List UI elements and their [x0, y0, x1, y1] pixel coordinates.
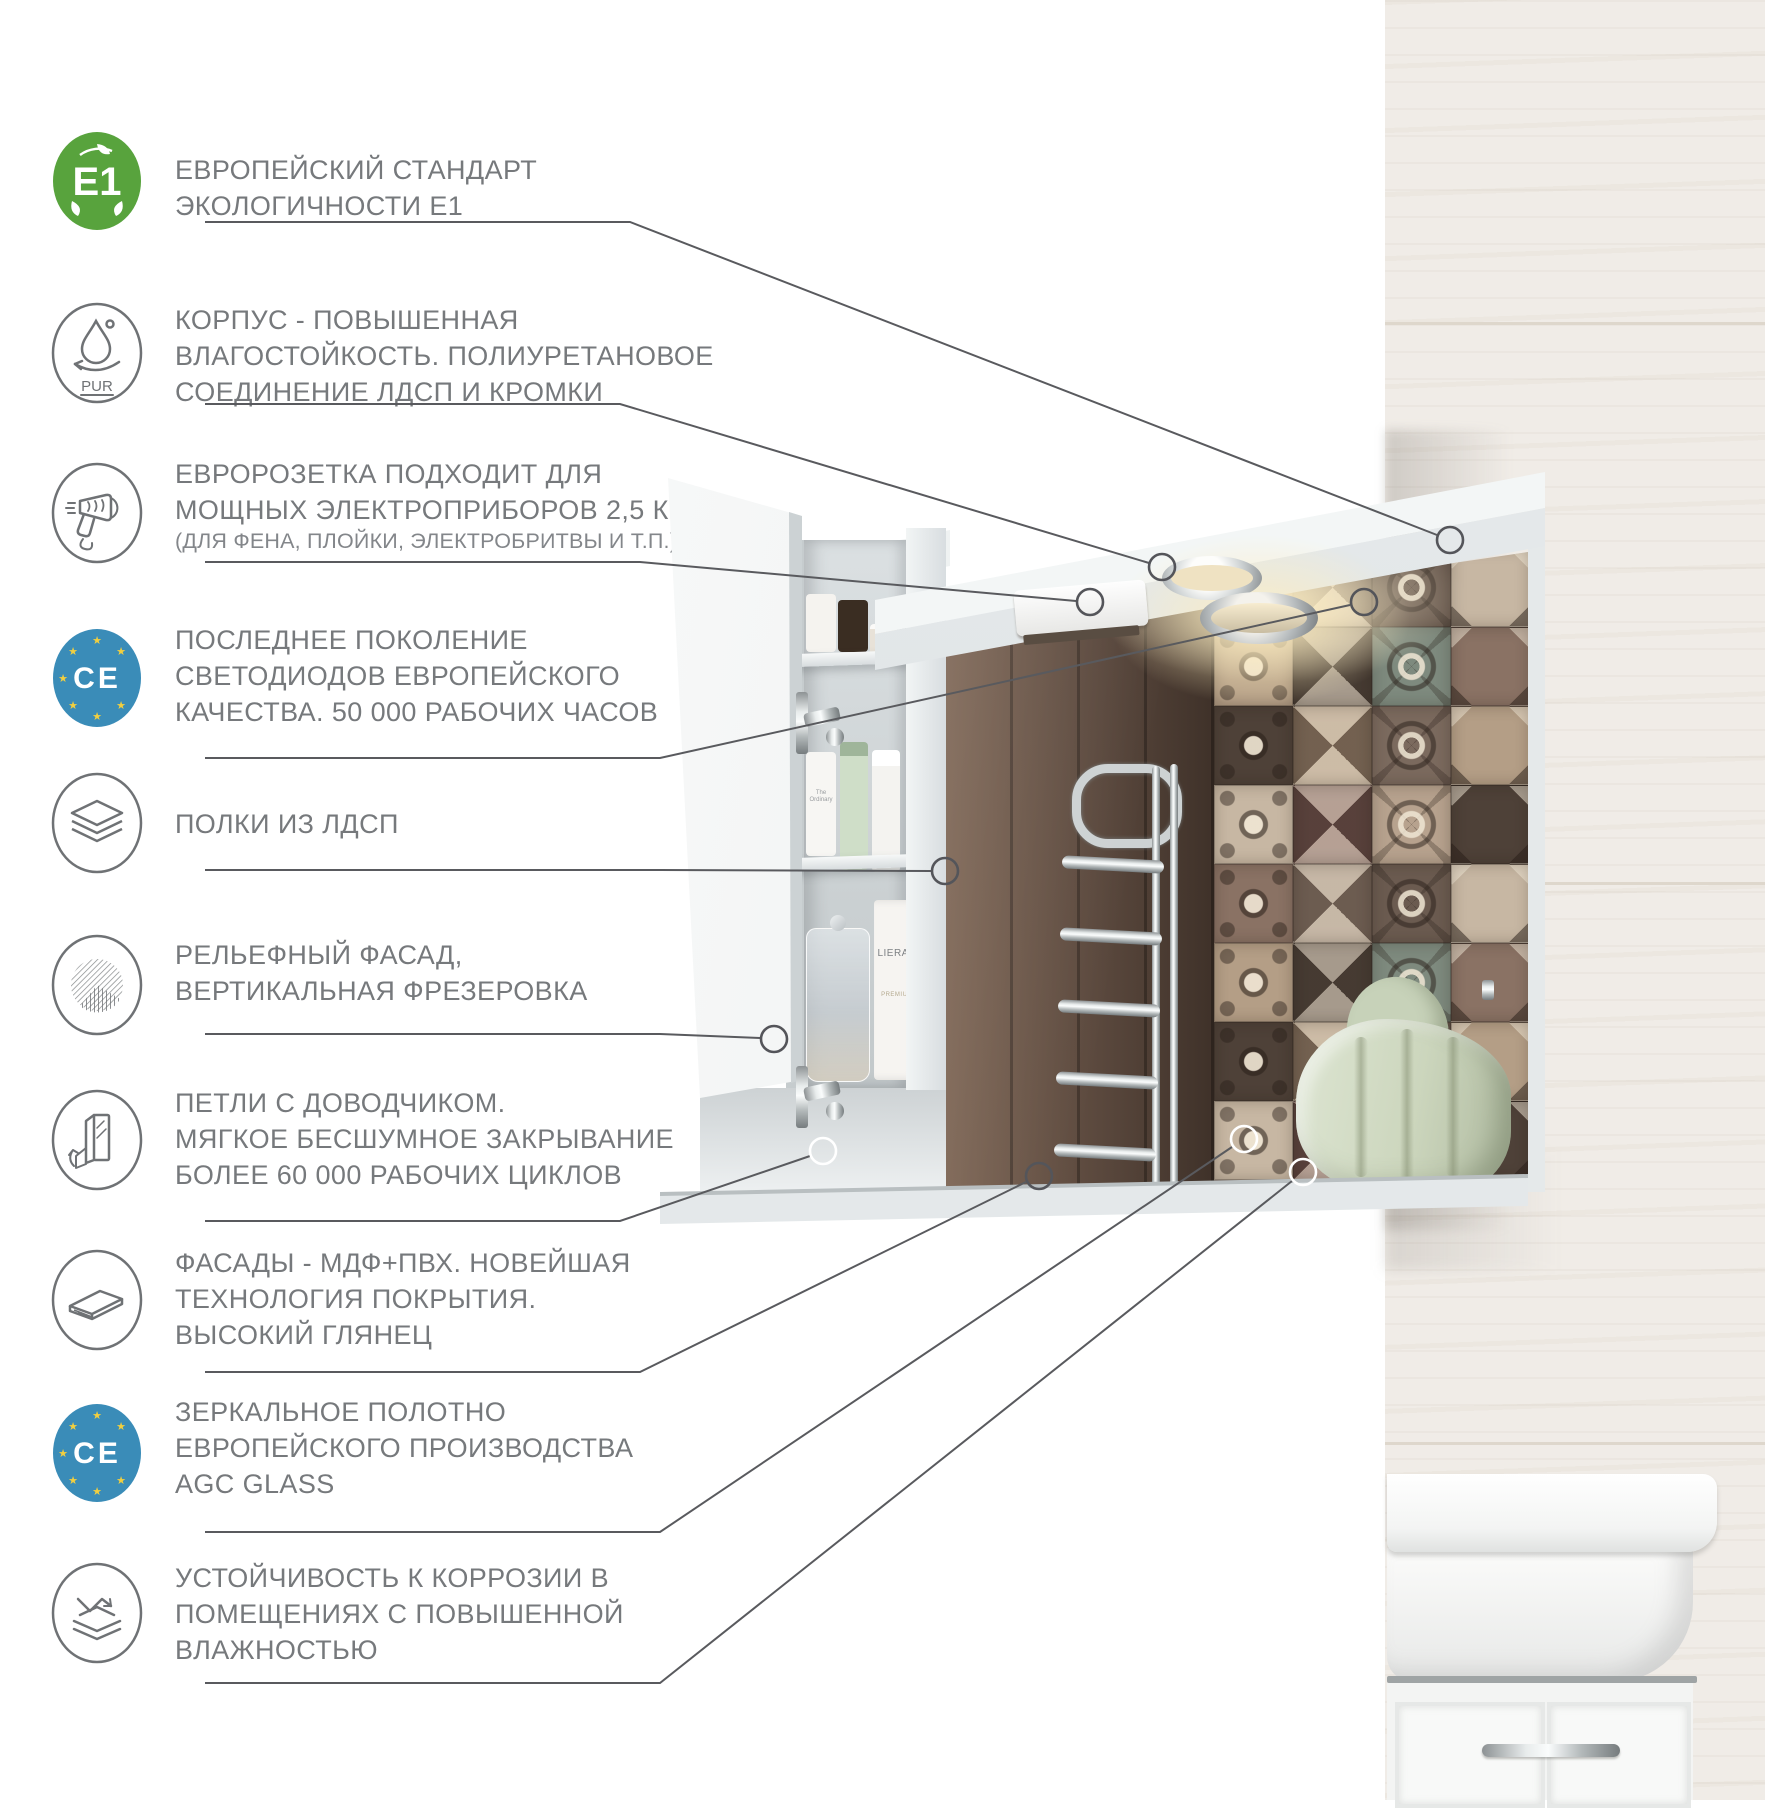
cosmetic-tube: The Ordinary	[806, 752, 836, 856]
vanity-basin	[1387, 1548, 1693, 1682]
product-photo: The Ordinary LIERAC PREMIUM	[0, 0, 1765, 1800]
jar-knob	[830, 915, 846, 931]
vanity-sink-top	[1387, 1474, 1717, 1552]
wall-plank-seam	[1385, 1442, 1765, 1445]
wall-plank-seam	[1385, 322, 1765, 325]
vanity-handle	[1482, 1744, 1620, 1757]
amber-jar	[838, 600, 868, 652]
door-hinge	[796, 1062, 848, 1136]
tube-label: The Ordinary	[806, 790, 836, 804]
halogen-light	[1200, 592, 1318, 644]
door-hinge	[796, 688, 848, 762]
infographic-canvas: { "colors": { "text": "#76797c", "line":…	[0, 0, 1765, 1800]
glass-swab-jar	[806, 928, 870, 1082]
cosmetic-jar	[806, 594, 836, 652]
vanity-gap	[1387, 1676, 1697, 1683]
cabinet-right-edge	[1528, 520, 1545, 1192]
